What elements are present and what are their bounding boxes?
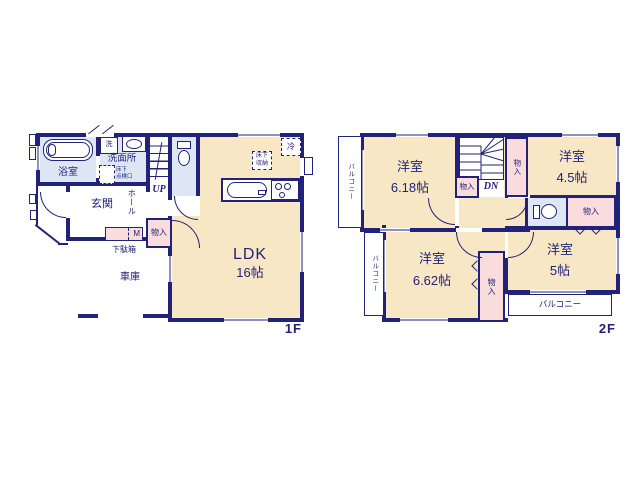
window	[396, 133, 428, 137]
balcony: バルコニー	[508, 294, 612, 316]
closet-label: 物入	[583, 207, 599, 216]
label-bedroom-5-size: 5帖	[508, 264, 612, 279]
closet-box-2f-b: 物入	[505, 137, 528, 197]
window	[616, 238, 620, 274]
floor2-label: 2F	[586, 322, 616, 337]
label-bedroom-45-size: 4.5帖	[528, 171, 616, 186]
label-bedroom-5: 洋室	[508, 243, 612, 258]
window	[616, 146, 620, 182]
window	[400, 318, 448, 322]
closet-box-2f-c: 物入	[566, 196, 616, 228]
label-bedroom-618: 洋室	[366, 160, 454, 175]
room-bedroom-45	[528, 137, 616, 195]
door-gap	[455, 198, 459, 226]
closet-box-2f-a: 物入	[455, 176, 479, 198]
window	[380, 228, 410, 232]
closet-label: 物入	[460, 183, 475, 192]
balcony: バルコニー	[364, 232, 384, 316]
toilet-bowl-icon	[541, 204, 557, 219]
closet-box-2f-d: 物入	[478, 251, 505, 322]
balcony-label: バルコニー	[539, 300, 581, 310]
label-bedroom-45: 洋室	[528, 150, 616, 165]
balcony: バルコニー	[338, 136, 362, 228]
toilet-tank-icon	[533, 205, 540, 219]
stairs-2f-icon	[459, 137, 504, 180]
label-stairs-down: DN	[478, 181, 504, 193]
closet-label: 物入	[487, 278, 496, 296]
window	[562, 133, 598, 137]
footer-logo: N ドリームナビハウジング(株)	[0, 420, 640, 480]
plan-floor2: バルコニー バルコニー バルコニー 物入 物入 物入 物入	[0, 0, 640, 480]
floorplan-canvas: 洗 冷 床下 収納 物入 M 浴室 洗面所	[0, 0, 640, 480]
label-bedroom-662-size: 6.62帖	[386, 274, 478, 289]
balcony-label: バルコニー	[346, 163, 353, 201]
label-bedroom-662: 洋室	[386, 252, 478, 267]
label-bedroom-618-size: 6.18帖	[366, 181, 454, 196]
balcony-label: バルコニー	[370, 255, 377, 293]
hall-2f-ext	[478, 232, 505, 251]
closet-label: 物入	[512, 159, 521, 176]
